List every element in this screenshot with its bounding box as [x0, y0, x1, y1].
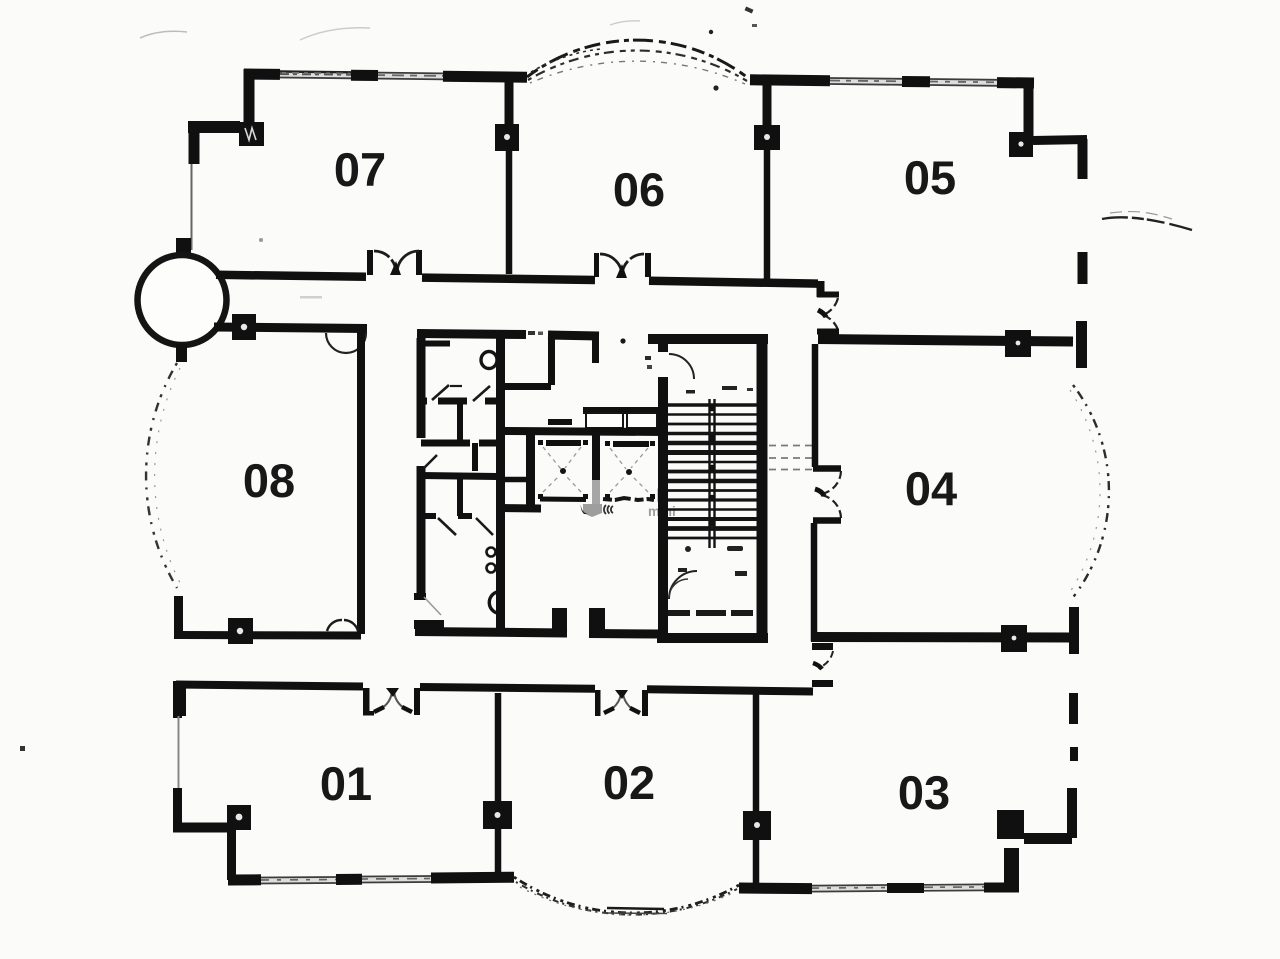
svg-text:07: 07 [334, 143, 386, 196]
svg-text:03: 03 [898, 766, 950, 819]
svg-text:06: 06 [613, 163, 665, 216]
svg-text:04: 04 [905, 462, 957, 515]
svg-text:08: 08 [243, 454, 295, 507]
svg-text:02: 02 [603, 756, 655, 809]
svg-text:01: 01 [320, 757, 372, 810]
svg-text:05: 05 [904, 151, 956, 204]
